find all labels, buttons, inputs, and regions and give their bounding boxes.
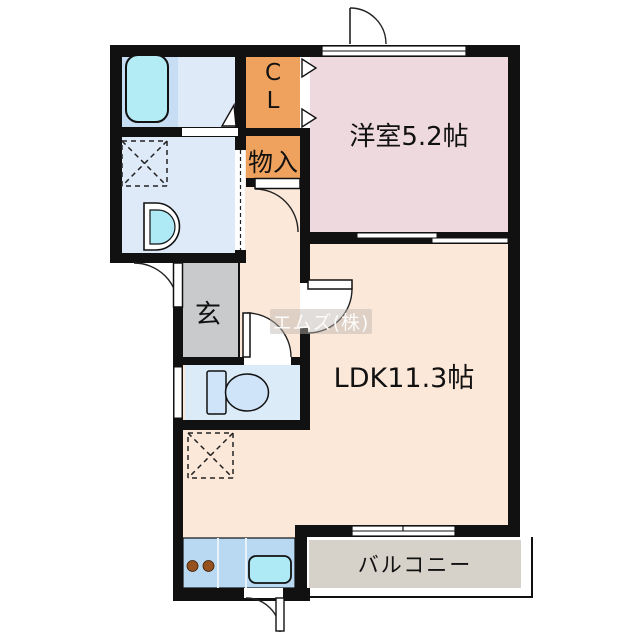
wall-sw-connector — [295, 525, 307, 601]
wall-washroom-right-lower — [235, 250, 246, 263]
wall-western-left — [300, 45, 310, 283]
room-bathroom-dry-bay — [178, 57, 238, 127]
label-closet-l: L — [246, 88, 300, 114]
entrance-door-swing — [134, 263, 178, 307]
wall-entrance-edge-line — [238, 263, 240, 357]
wall-toilet-bottom — [177, 420, 310, 430]
label-closet-c: C — [246, 60, 300, 86]
back-door-swing — [246, 598, 280, 632]
wall-left-upper — [110, 45, 122, 263]
wall-western-ldk-partition — [300, 232, 520, 244]
wall-right — [508, 45, 520, 537]
wall-toilet-top — [177, 357, 310, 365]
label-storage: 物入 — [246, 143, 300, 179]
room-washroom — [122, 137, 235, 253]
wall-left-lower — [173, 263, 183, 601]
wall-ldk-bottom — [295, 525, 520, 537]
back-door-leaf — [276, 598, 284, 631]
label-ldk: LDK11.3帖 — [300, 356, 508, 395]
wall-top — [110, 45, 520, 57]
floorplan: 洋室5.2帖 LDK11.3帖 バルコニー C L 物入 玄 エムズ(株) — [0, 0, 640, 640]
door-swing-top — [350, 8, 386, 44]
room-bathroom-tub-bay — [122, 57, 178, 127]
wall-washroom-bottom — [110, 253, 246, 263]
wall-bottom-kitchen — [173, 588, 310, 601]
label-entrance: 玄 — [183, 294, 233, 331]
label-western-room: 洋室5.2帖 — [310, 116, 508, 153]
label-balcony: バルコニー — [309, 549, 521, 579]
wall-bath-bottom — [110, 127, 246, 137]
watermark: エムズ(株) — [270, 309, 372, 334]
room-toilet — [185, 365, 300, 420]
